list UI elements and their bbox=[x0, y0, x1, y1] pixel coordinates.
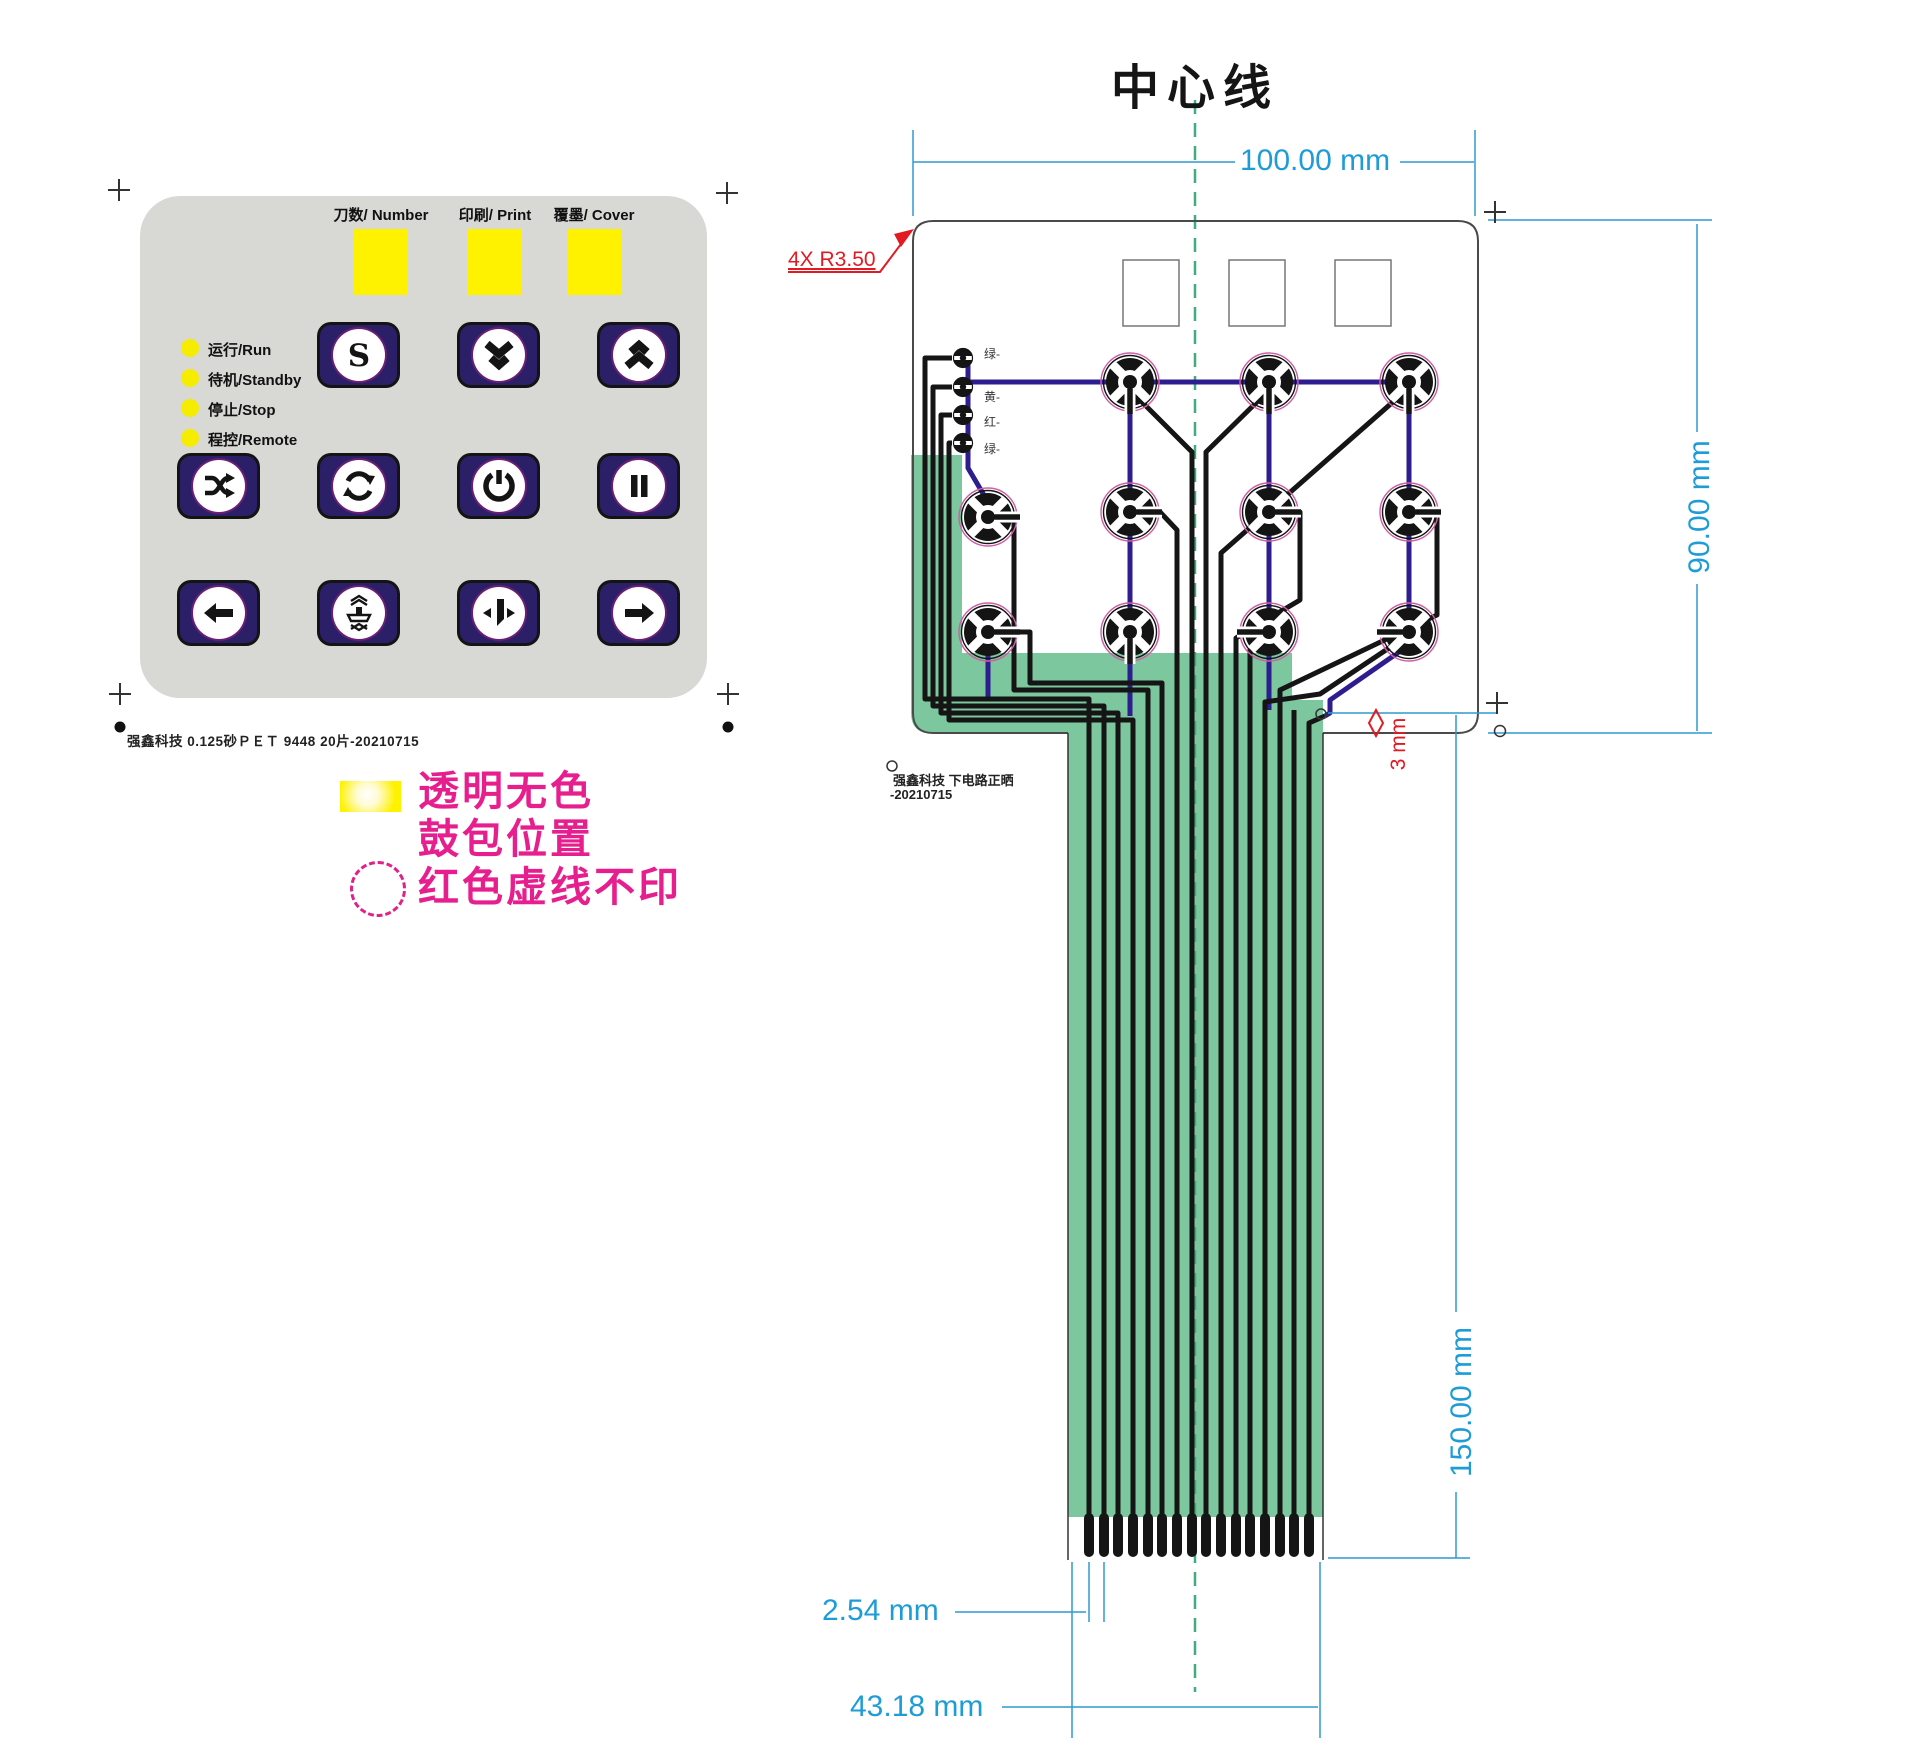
led-label-remote: 程控/Remote bbox=[208, 429, 297, 450]
led-stop bbox=[181, 399, 199, 417]
legend-line1: 透明无色 bbox=[418, 768, 594, 814]
window-label-number: 刀数/ Number bbox=[333, 204, 428, 225]
registration-dot bbox=[723, 722, 734, 733]
key-arrow-right bbox=[597, 580, 680, 646]
connector-finger-tips bbox=[1089, 1518, 1309, 1552]
s-icon: S bbox=[339, 335, 379, 375]
circuit-note-line2: -20210715 bbox=[890, 787, 952, 802]
key-shuffle bbox=[177, 453, 260, 519]
led-label-stop: 停止/Stop bbox=[208, 399, 276, 420]
registration-dot bbox=[115, 722, 126, 733]
power-icon bbox=[479, 466, 519, 506]
key-power bbox=[457, 453, 540, 519]
key-arrow-left bbox=[177, 580, 260, 646]
svg-text:S: S bbox=[347, 338, 369, 374]
window-print bbox=[467, 229, 522, 295]
dim-tail-width: 43.18 mm bbox=[850, 1690, 983, 1724]
window-label-print: 印刷/ Print bbox=[459, 204, 532, 225]
press-icon bbox=[339, 593, 379, 633]
window-label-cover: 覆墨/ Cover bbox=[554, 204, 635, 225]
legend-line3: 红色虚线不印 bbox=[418, 864, 682, 910]
center-line-title: 中心线 bbox=[1111, 48, 1279, 118]
key-s: S bbox=[317, 322, 400, 388]
dim-tail-length: 150.00 mm bbox=[1445, 1327, 1479, 1477]
legend-dashed-circle bbox=[350, 861, 406, 917]
display-windows bbox=[1123, 260, 1391, 326]
key-contact-pads bbox=[959, 353, 1441, 664]
cycle-icon bbox=[339, 466, 379, 506]
drawing-canvas: 中心线 100.00 mm 90.00 mm 150.00 mm 2.54 mm… bbox=[0, 0, 1920, 1752]
dim-height: 90.00 mm bbox=[1683, 440, 1717, 573]
double-up-icon bbox=[619, 335, 659, 375]
led-trace-label-green2: 绿- bbox=[984, 440, 1000, 457]
led-run bbox=[181, 339, 199, 357]
dim-width: 100.00 mm bbox=[1240, 144, 1390, 178]
key-cutter bbox=[457, 580, 540, 646]
led-trace-label-yellow: 黄- bbox=[984, 388, 1000, 405]
dim-offset: 3 mm bbox=[1387, 718, 1411, 771]
dim-pitch: 2.54 mm bbox=[822, 1594, 939, 1628]
arrow-right-icon bbox=[619, 593, 659, 633]
shuffle-icon bbox=[199, 466, 239, 506]
key-cycle bbox=[317, 453, 400, 519]
led-remote bbox=[181, 429, 199, 447]
legend-line2: 鼓包位置 bbox=[418, 816, 594, 862]
cutter-icon bbox=[479, 593, 519, 633]
led-label-standby: 待机/Standby bbox=[208, 369, 301, 390]
key-double-up bbox=[597, 322, 680, 388]
double-down-icon bbox=[479, 335, 519, 375]
window-number bbox=[353, 229, 408, 295]
led-label-run: 运行/Run bbox=[208, 339, 271, 360]
key-pause bbox=[597, 453, 680, 519]
production-note: 强鑫科技 0.125砂ＰＥＴ 9448 20片-20210715 bbox=[127, 730, 419, 750]
window-cover bbox=[567, 229, 622, 295]
registration-circle bbox=[1495, 726, 1506, 737]
led-standby bbox=[181, 369, 199, 387]
key-double-down bbox=[457, 322, 540, 388]
key-press bbox=[317, 580, 400, 646]
legend-transparent-swatch bbox=[340, 781, 401, 812]
corner-radius-note: 4X R3.50 bbox=[788, 248, 876, 272]
led-trace-label-red: 红- bbox=[984, 413, 1000, 430]
pause-icon bbox=[619, 466, 659, 506]
arrow-left-icon bbox=[199, 593, 239, 633]
led-trace-label-green1: 绿- bbox=[984, 345, 1000, 362]
